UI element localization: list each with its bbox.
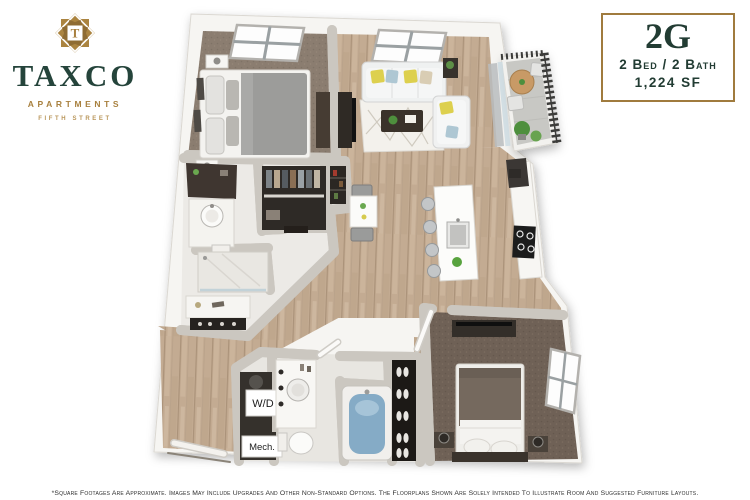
walk-in-closet [262,166,326,233]
tv [352,98,356,142]
floorplan-rendering: W/D Mech. [0,0,750,500]
dining-chair [351,228,373,241]
sofa [362,62,446,102]
mech-label: Mech. [249,442,275,453]
floorplan-flyer: T TAXCO APARTMENTS FIFTH STREET 2G 2 Bed… [0,0,750,500]
shoe-closet [392,360,416,461]
bed-2 [452,364,528,462]
small-appliance [509,169,521,178]
wd-label: W/D [252,398,273,410]
bar-stool [424,221,437,234]
coffee-table [381,110,423,132]
dining-chair [352,185,372,197]
dresser [316,92,330,148]
media-console [338,92,352,148]
bathtub [342,386,392,460]
vanity-counter [186,163,237,199]
window-living [372,30,446,64]
balcony-chair [507,95,524,111]
window-bedroom1 [230,25,304,61]
entry-floor [160,330,242,452]
window-bedroom2 [546,349,580,413]
shower [198,252,268,292]
bar-stool [428,265,441,278]
bar-stool [426,244,439,257]
toilet-2 [289,432,313,454]
hanging-clothes [266,170,320,188]
kitchen-island [434,185,478,281]
mechanical-closet: Mech. [240,432,282,460]
cooktop [512,225,536,258]
wall-art [193,110,201,132]
bedroom-1 [193,55,330,173]
footnote-disclaimer: *Square Footages Are Approximate. Images… [0,490,750,497]
entry [186,296,250,330]
pantry [330,166,346,204]
wall-art [196,78,204,100]
bar-stool [422,198,435,211]
chaise [433,96,470,148]
dining-table [350,196,377,227]
